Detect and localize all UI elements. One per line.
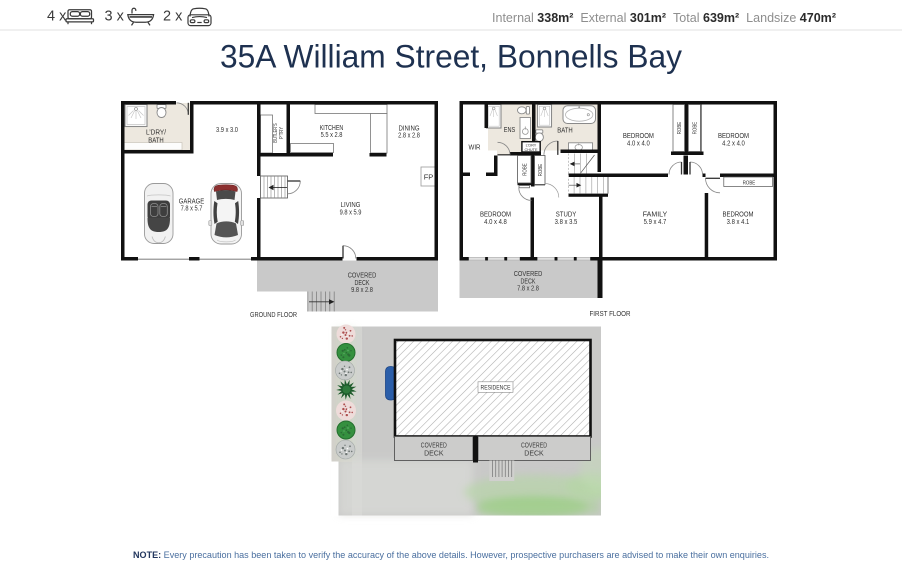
svg-text:BUTLER’S: BUTLER’S [273,123,279,143]
svg-text:NOTE: Every precaution has bee: NOTE: Every precaution has been taken to… [133,550,769,560]
svg-text:2 x: 2 x [163,9,183,25]
svg-text:ROBE: ROBE [538,163,544,176]
svg-text:5.9 x 4.7: 5.9 x 4.7 [644,217,667,226]
svg-text:RESIDENCE: RESIDENCE [481,385,511,391]
svg-text:3.9 x 3.0: 3.9 x 3.0 [216,125,238,134]
svg-text:ROBE: ROBE [522,163,528,176]
svg-text:ROBE: ROBE [743,180,756,186]
svg-text:3.8 x 3.5: 3.8 x 3.5 [555,217,578,226]
svg-text:ROBE: ROBE [693,121,699,134]
svg-text:9.8 x 5.9: 9.8 x 5.9 [340,208,362,217]
svg-text:4.2 x 4.0: 4.2 x 4.0 [722,138,745,147]
svg-text:COVERED: COVERED [421,443,447,450]
svg-text:4.0 x 4.8: 4.0 x 4.8 [484,217,507,226]
svg-text:3.8 x 4.1: 3.8 x 4.1 [727,217,750,226]
svg-text:WIR: WIR [469,143,481,152]
svg-text:FP: FP [424,173,434,182]
svg-text:5.5 x 2.8: 5.5 x 2.8 [321,130,343,139]
svg-text:BATH: BATH [148,136,164,145]
svg-text:7.8 x 2.8: 7.8 x 2.8 [517,284,539,293]
svg-text:7.8 x 5.7: 7.8 x 5.7 [181,204,203,213]
svg-text:ROBE: ROBE [677,121,683,134]
svg-text:Internal 338m² External 301m²: Internal 338m² External 301m² Total 639m… [492,10,837,25]
svg-text:BATH: BATH [557,125,573,134]
svg-text:4 x: 4 x [47,9,67,25]
svg-text:ENS: ENS [504,125,516,134]
svg-text:4.0 x 4.0: 4.0 x 4.0 [627,138,650,147]
svg-text:DECK: DECK [524,450,544,457]
svg-text:9.8 x 2.8: 9.8 x 2.8 [351,285,373,294]
svg-text:COVERED: COVERED [521,443,547,450]
svg-text:CHUTE: CHUTE [524,148,538,152]
svg-text:35A William Street, Bonnells B: 35A William Street, Bonnells Bay [220,39,683,75]
svg-text:2.8 x 2.8: 2.8 x 2.8 [398,131,420,140]
svg-text:GROUND FLOOR: GROUND FLOOR [250,310,297,319]
svg-text:DECK: DECK [424,450,444,457]
svg-text:FIRST FLOOR: FIRST FLOOR [590,309,631,318]
svg-text:P’TRY: P’TRY [279,126,285,139]
svg-text:3 x: 3 x [105,9,125,25]
